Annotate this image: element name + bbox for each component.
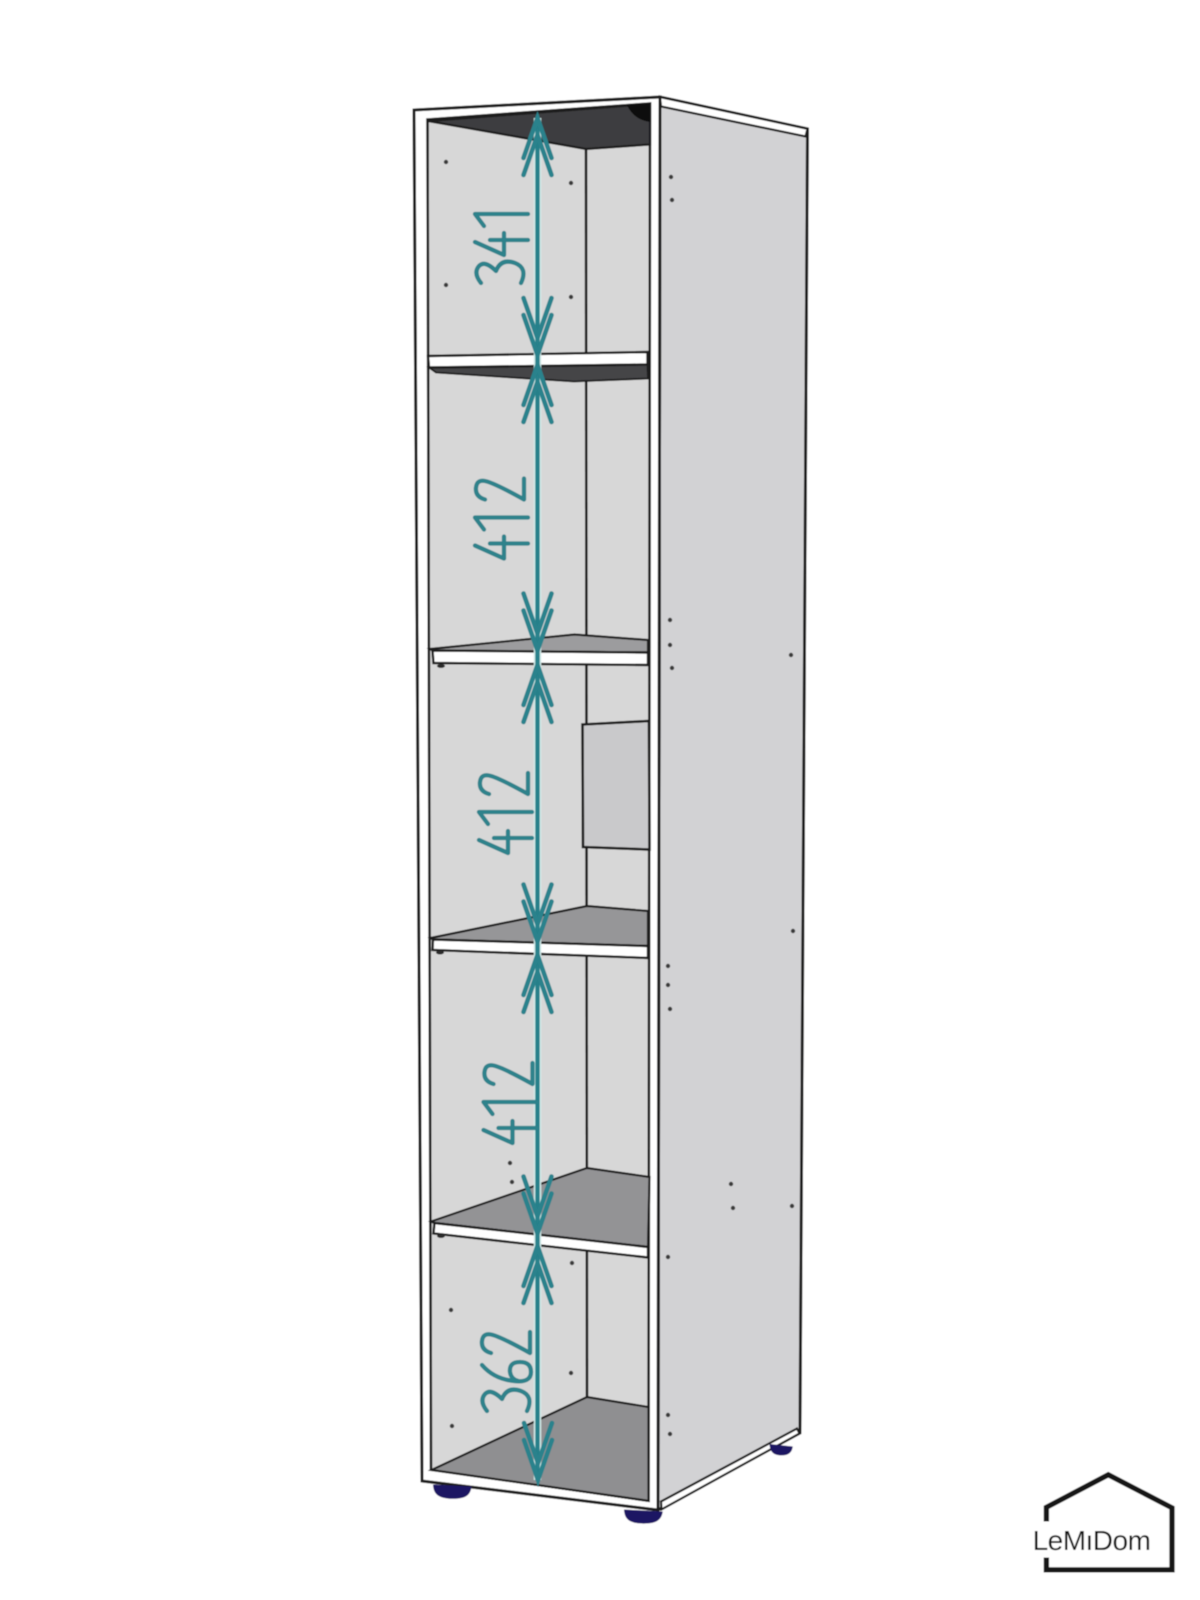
svg-text:LeMıDom: LeMıDom [1033,1525,1151,1556]
